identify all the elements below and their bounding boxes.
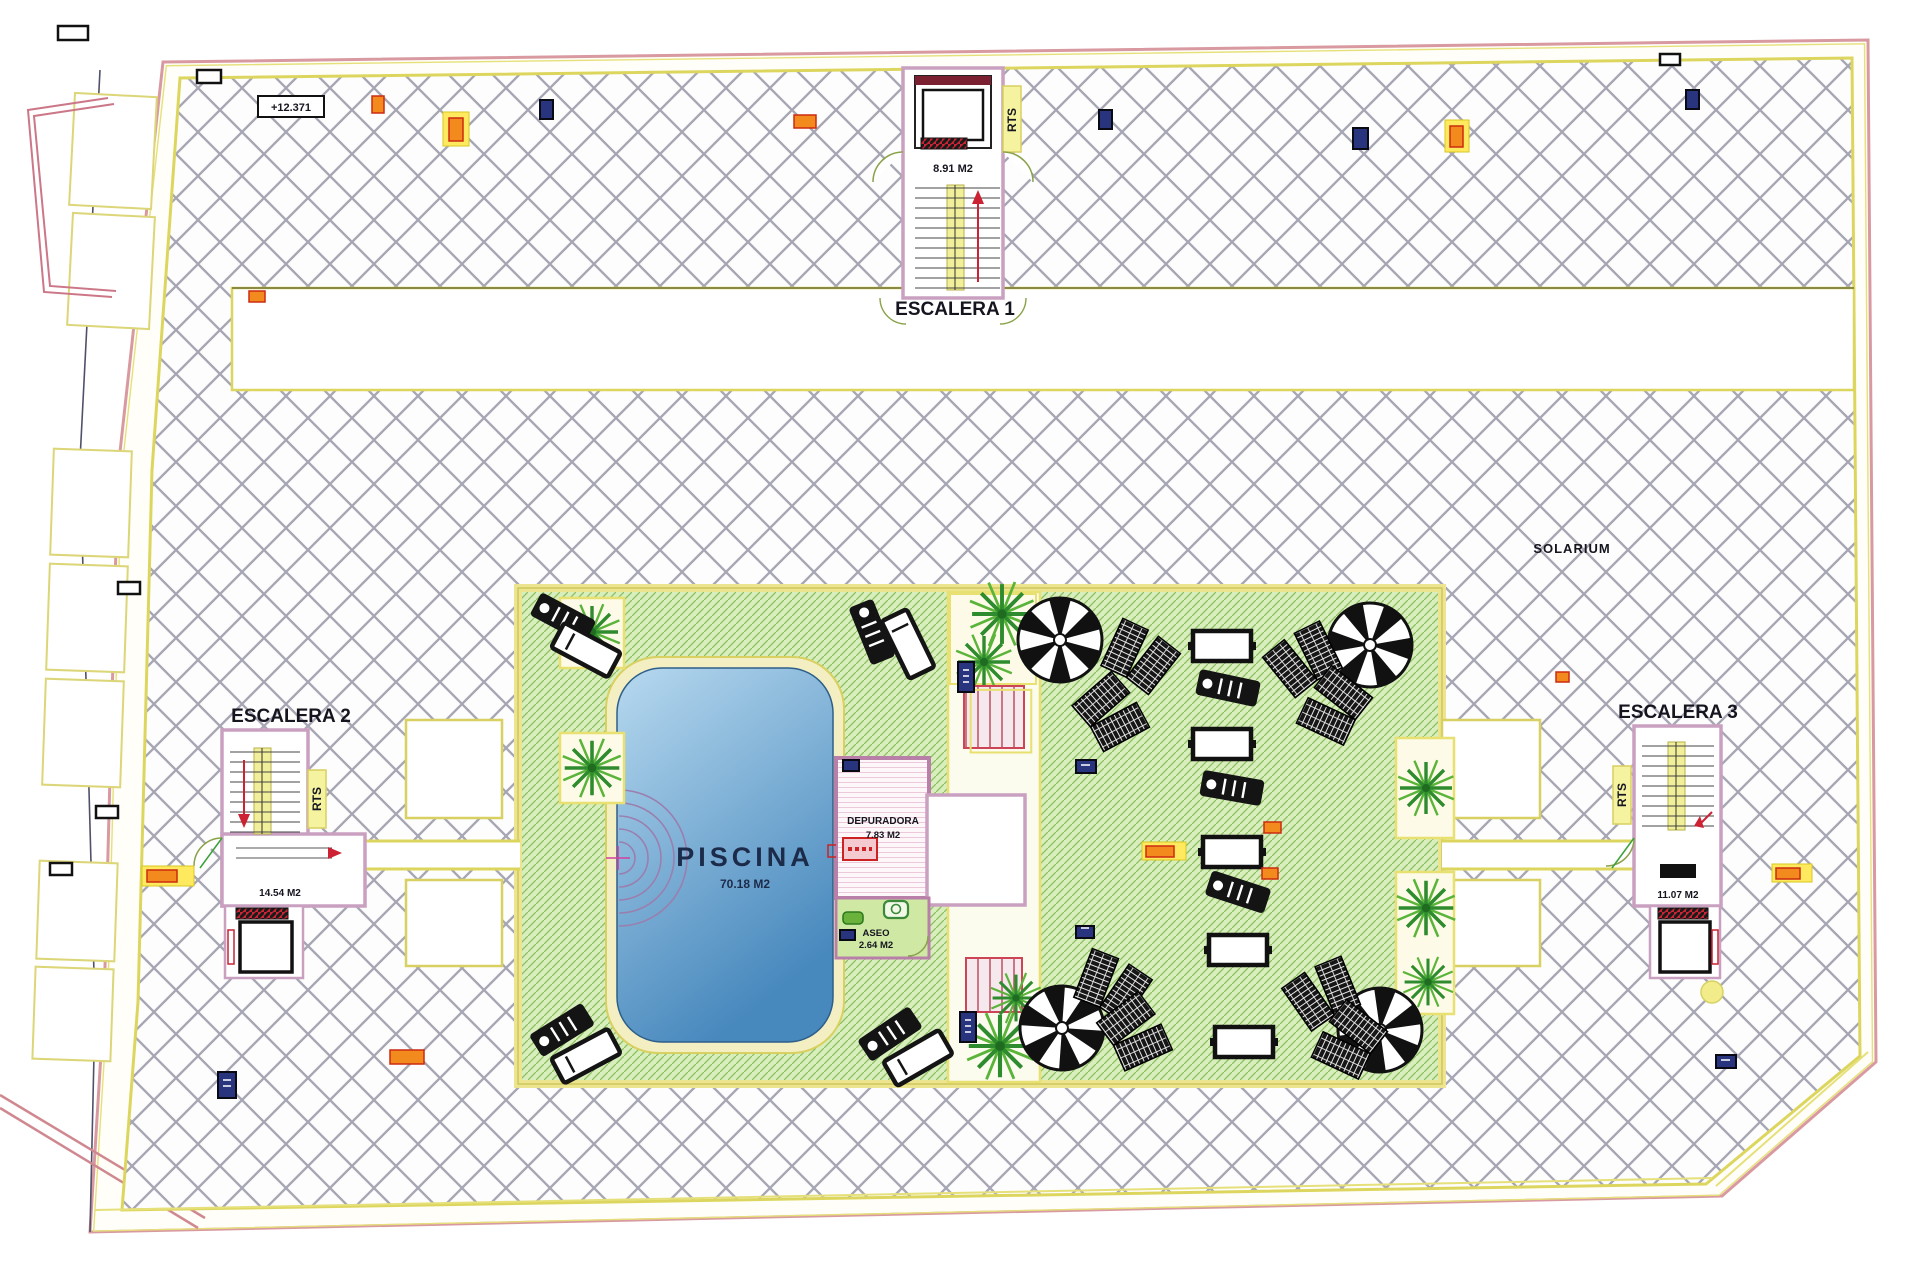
stair1-title: ESCALERA 1 <box>895 299 1015 320</box>
sun-table-icon <box>1188 631 1256 661</box>
level-mark-label: +12.371 <box>271 102 311 114</box>
plant-room: DEPURADORA 7.83 M2 <box>828 758 929 898</box>
sink-icon <box>843 912 863 924</box>
wc-room: ASEO 2.64 M2 <box>836 898 929 958</box>
rooftop-solarium-plan: PISCINA 70.18 M2 DEPURADORA 7.83 M2 <box>0 0 1920 1280</box>
wc-area-label: 2.64 M2 <box>859 940 893 951</box>
riser-tag-3: RTS <box>1615 783 1629 807</box>
elevator-icon <box>240 922 292 972</box>
swimming-pool: PISCINA 70.18 M2 <box>606 657 844 1053</box>
elevator-2 <box>225 906 303 978</box>
pool-label: PISCINA <box>676 842 814 872</box>
wc-label: ASEO <box>863 928 890 939</box>
plant-room-label: DEPURADORA <box>847 816 919 827</box>
store-room <box>927 795 1025 905</box>
stair2-area-label: 14.54 M2 <box>259 888 301 899</box>
solarium-label: SOLARIUM <box>1533 541 1610 556</box>
elevator-3 <box>1650 906 1720 978</box>
elevator-icon <box>923 90 983 140</box>
drain-marker <box>1701 981 1723 1003</box>
toilet-icon <box>884 901 908 918</box>
riser-tag-2: RTS <box>310 787 324 811</box>
sun-table-icon <box>1210 1027 1278 1057</box>
stair2-title: ESCALERA 2 <box>231 706 351 727</box>
room-tag-box <box>1660 864 1696 878</box>
plant-room-area-label: 7.83 M2 <box>866 830 900 841</box>
sun-table-icon <box>1198 837 1266 867</box>
stair1-area-label: 8.91 M2 <box>933 163 973 175</box>
sun-table-icon <box>1188 729 1256 759</box>
pool-area-label: 70.18 M2 <box>720 877 770 891</box>
floor-plan-page: PISCINA 70.18 M2 DEPURADORA 7.83 M2 <box>0 0 1920 1280</box>
void-band <box>232 288 1854 390</box>
level-annotation: +12.371 <box>258 96 324 117</box>
elevator-icon <box>1660 922 1710 972</box>
wood-deck <box>964 686 1024 748</box>
elevator-door-bar <box>915 76 991 85</box>
sun-table-icon <box>1204 935 1272 965</box>
right-planters <box>1385 738 1467 1017</box>
riser-tag-1: RTS <box>1005 108 1019 132</box>
stair3-area-label: 11.07 M2 <box>1657 890 1699 901</box>
stair3-title: ESCALERA 3 <box>1618 702 1738 723</box>
